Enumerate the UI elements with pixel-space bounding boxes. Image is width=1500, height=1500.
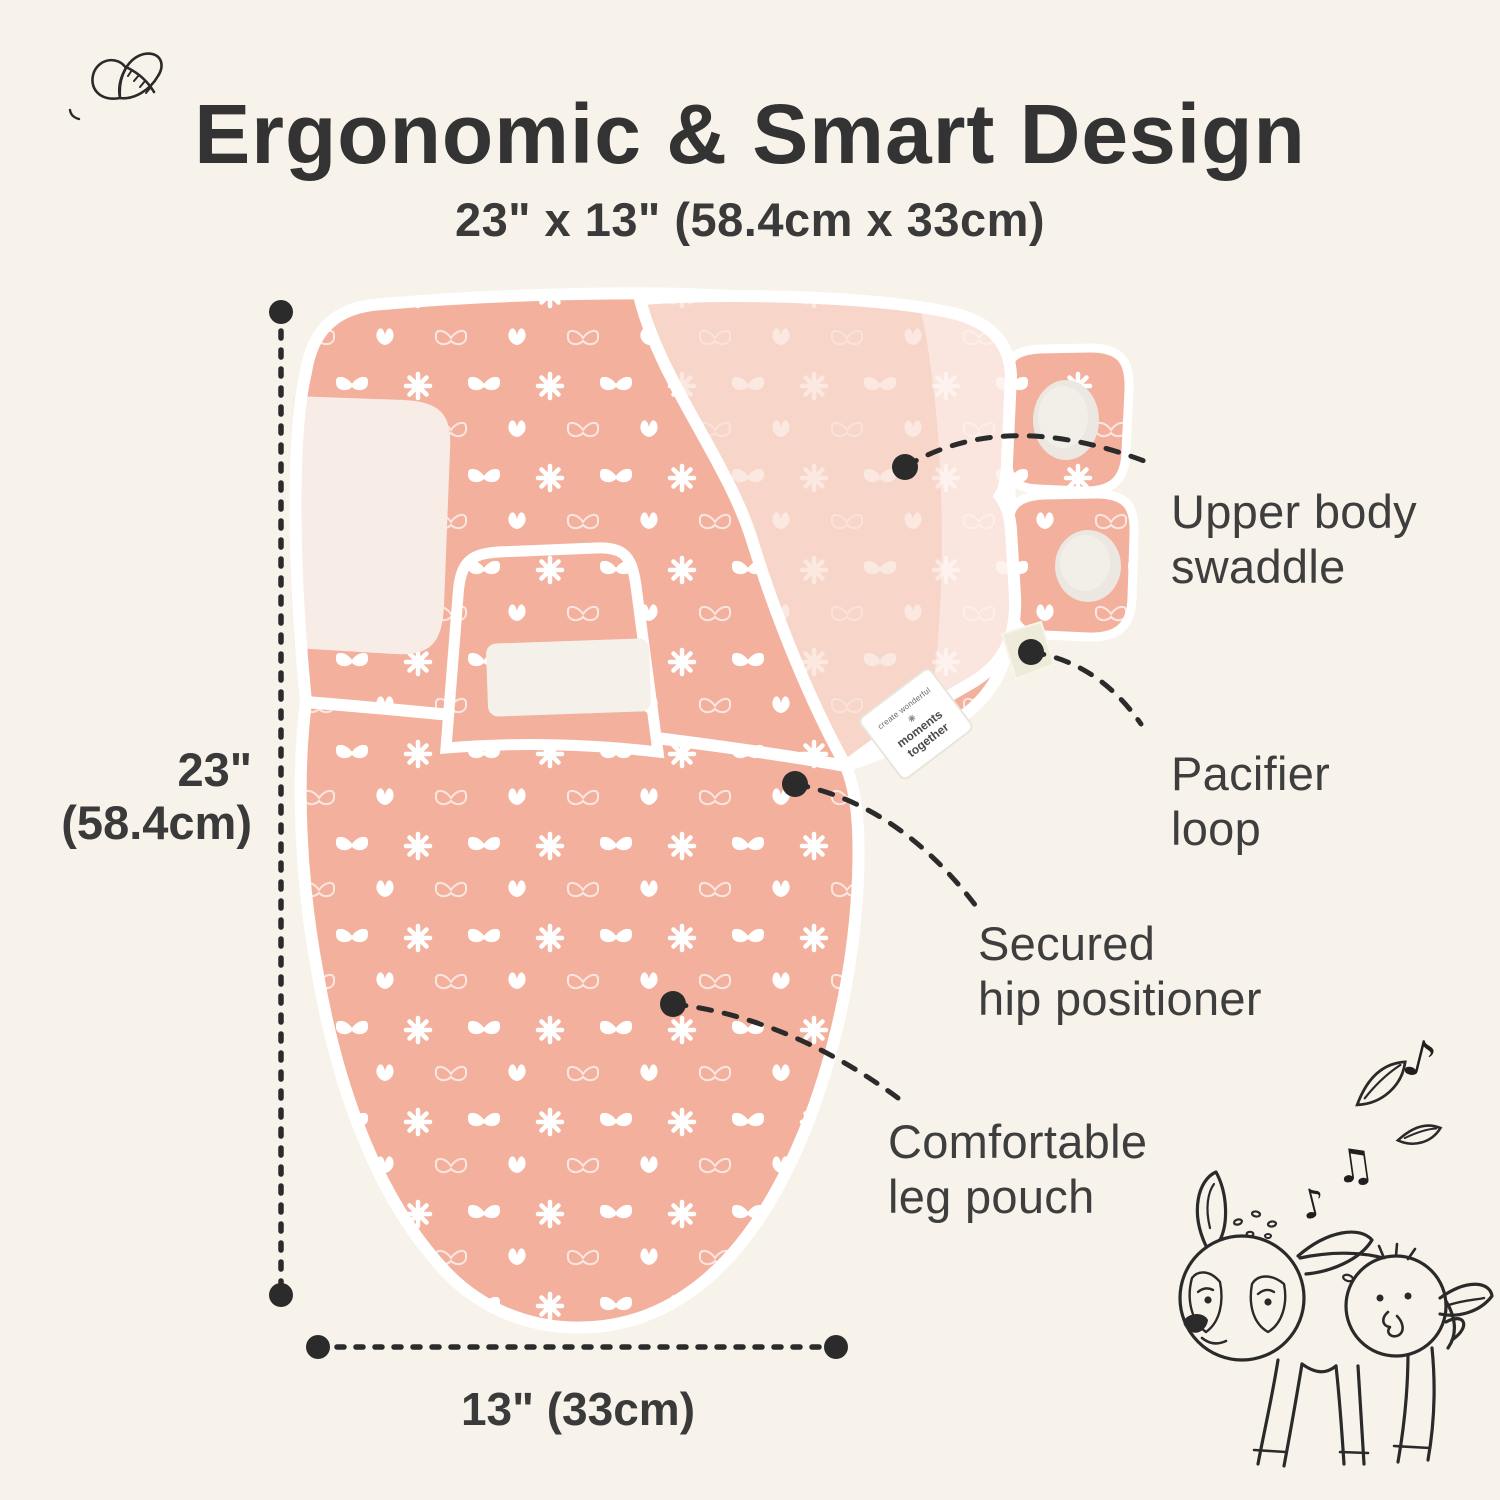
music-notes-and-leaves: ♪ ♫ ♪	[1295, 1027, 1442, 1229]
annotation-secured-hip-positioner: Secured hip positioner	[978, 916, 1262, 1027]
infographic-canvas: create wonderful moments together	[0, 0, 1500, 1500]
leaf-icon	[1357, 1054, 1405, 1113]
dimension-line-horizontal	[306, 1335, 848, 1359]
bird-doodle	[1346, 1244, 1492, 1356]
music-note-icon: ♫	[1330, 1136, 1378, 1195]
inner-lining-patch	[290, 396, 450, 654]
page-title: Ergonomic & Smart Design	[0, 86, 1500, 183]
leg-pouch	[301, 702, 859, 1328]
dimension-line-vertical	[269, 300, 293, 1307]
deer-and-bird-doodle-icon	[1180, 1172, 1492, 1466]
velcro-strip	[486, 638, 651, 717]
height-value-metric: (58.4cm)	[28, 797, 252, 850]
height-dimension-label: 23" (58.4cm)	[28, 744, 252, 849]
leaf-icon	[1398, 1112, 1441, 1157]
annotation-pacifier-loop: Pacifier loop	[1171, 746, 1330, 857]
height-value: 23"	[28, 744, 252, 797]
music-note-icon: ♪	[1295, 1179, 1331, 1230]
deer-head	[1180, 1172, 1372, 1360]
velcro-tab-upper	[1006, 348, 1129, 491]
music-note-icon: ♪	[1397, 1027, 1442, 1091]
annotation-comfortable-leg-pouch: Comfortable leg pouch	[888, 1114, 1147, 1225]
annotation-upper-body-swaddle: Upper body swaddle	[1171, 484, 1417, 595]
page-subtitle: 23" x 13" (58.4cm x 33cm)	[0, 192, 1500, 247]
width-dimension-label: 13" (33cm)	[377, 1382, 779, 1436]
velcro-tab-lower	[1010, 494, 1134, 637]
center-strap	[446, 548, 658, 752]
